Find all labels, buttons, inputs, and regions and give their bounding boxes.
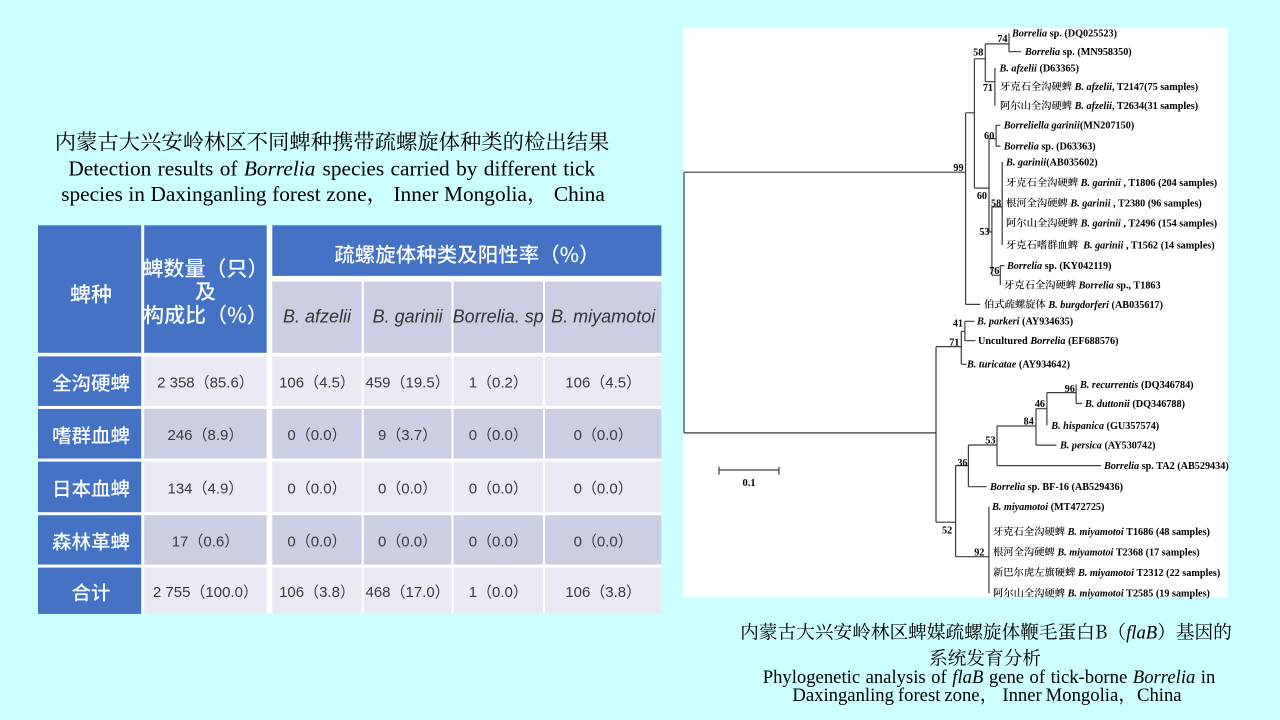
svg-text:0.0: 0.0 xyxy=(492,427,513,444)
svg-text:0: 0 xyxy=(287,533,295,550)
svg-text:0: 0 xyxy=(469,533,477,550)
svg-text:(AY530742): (AY530742) xyxy=(1102,441,1156,452)
svg-text:species carried by different t: species carried by different tick xyxy=(316,156,595,180)
svg-text:246: 246 xyxy=(168,427,193,444)
svg-text:0.0: 0.0 xyxy=(311,533,332,550)
svg-text:Borrelia. sp: Borrelia. sp xyxy=(453,307,544,327)
svg-text:71: 71 xyxy=(983,83,993,94)
svg-text:B. afzelii: B. afzelii xyxy=(283,307,352,327)
svg-text:60: 60 xyxy=(984,131,994,142)
svg-text:China: China xyxy=(1137,685,1182,706)
svg-text:T1686 (48 samples): T1686 (48 samples) xyxy=(1124,527,1210,538)
svg-text:Borrelia: Borrelia xyxy=(1076,280,1114,291)
svg-text:sp., T1863: sp., T1863 xyxy=(1114,280,1161,291)
svg-text:B. duttonii: B. duttonii xyxy=(1084,399,1130,410)
svg-text:, T1562 (14 samples): , T1562 (14 samples) xyxy=(1123,240,1214,251)
svg-text:0.0: 0.0 xyxy=(492,533,513,550)
svg-text:17.0: 17.0 xyxy=(406,584,435,601)
svg-text:0.0: 0.0 xyxy=(492,584,513,601)
svg-text:60: 60 xyxy=(977,191,987,202)
svg-text:468: 468 xyxy=(366,584,391,601)
svg-text:B. garinii: B. garinii xyxy=(1068,198,1111,209)
svg-text:92: 92 xyxy=(974,548,984,559)
svg-text:46: 46 xyxy=(1035,399,1045,410)
svg-text:B. turicatae: B. turicatae xyxy=(966,360,1017,371)
svg-text:B. miyamotoi: B. miyamotoi xyxy=(991,502,1048,513)
svg-text:0: 0 xyxy=(469,480,477,497)
svg-text:0.6: 0.6 xyxy=(203,533,224,550)
svg-text:53: 53 xyxy=(985,436,995,447)
svg-text:Borreliella garinii: Borreliella garinii xyxy=(1003,121,1080,132)
svg-text:0.0: 0.0 xyxy=(597,427,618,444)
svg-text:9: 9 xyxy=(378,427,386,444)
svg-text:52: 52 xyxy=(942,525,952,536)
svg-text:in: in xyxy=(1196,667,1216,688)
svg-text:Borrelia: Borrelia xyxy=(1003,142,1039,153)
svg-text:100.0: 100.0 xyxy=(205,584,243,601)
svg-text:B. miyamotoi: B. miyamotoi xyxy=(551,307,656,327)
svg-text:134: 134 xyxy=(168,480,193,497)
svg-text:1: 1 xyxy=(469,375,477,392)
svg-text:71: 71 xyxy=(949,337,959,348)
svg-text:China: China xyxy=(548,182,605,206)
svg-text:B. persica: B. persica xyxy=(1059,441,1102,452)
svg-text:B. burgdorferi: B. burgdorferi xyxy=(1046,300,1109,311)
svg-text:0.0: 0.0 xyxy=(597,533,618,550)
svg-text:19.5: 19.5 xyxy=(406,375,435,392)
svg-text:0: 0 xyxy=(378,533,386,550)
svg-text:T2585 (19 samples): T2585 (19 samples) xyxy=(1124,589,1210,600)
svg-text:2 358: 2 358 xyxy=(157,375,195,392)
svg-text:8.9: 8.9 xyxy=(208,427,229,444)
svg-text:76: 76 xyxy=(989,266,999,277)
svg-text:Uncultured: Uncultured xyxy=(978,336,1030,347)
svg-text:0.0: 0.0 xyxy=(597,480,618,497)
svg-text:B. afzelii: B. afzelii xyxy=(1072,101,1112,112)
svg-text:B. garinii: B. garinii xyxy=(1005,157,1046,168)
svg-text:B. garinii: B. garinii xyxy=(1078,240,1123,251)
svg-text:4.5: 4.5 xyxy=(605,375,626,392)
svg-text:(MT472725): (MT472725) xyxy=(1048,502,1104,513)
svg-text:Inner Mongolia: Inner Mongolia xyxy=(998,685,1119,706)
svg-text:(DQ346788): (DQ346788) xyxy=(1130,399,1185,410)
svg-text:Borrelia: Borrelia xyxy=(1029,336,1065,347)
svg-text:Detection results of: Detection results of xyxy=(68,156,243,180)
svg-text:Borrelia: Borrelia xyxy=(1006,261,1042,272)
svg-text:4.5: 4.5 xyxy=(319,375,340,392)
svg-text:2 755: 2 755 xyxy=(153,584,191,601)
svg-text:B. garinii: B. garinii xyxy=(1078,178,1121,189)
svg-text:0: 0 xyxy=(287,427,295,444)
svg-text:(MN207150): (MN207150) xyxy=(1080,121,1134,132)
svg-text:85.6: 85.6 xyxy=(210,375,239,392)
svg-text:T2368 (17 samples): T2368 (17 samples) xyxy=(1114,547,1200,558)
svg-text:, T2496 (154 samples): , T2496 (154 samples) xyxy=(1121,218,1217,229)
svg-text:459: 459 xyxy=(366,375,391,392)
svg-text:T2312 (22 samples): T2312 (22 samples) xyxy=(1134,568,1220,579)
svg-text:0: 0 xyxy=(574,480,582,497)
svg-text:0: 0 xyxy=(469,427,477,444)
svg-text:0.2: 0.2 xyxy=(492,375,513,392)
svg-text:106: 106 xyxy=(565,375,590,392)
svg-text:0.0: 0.0 xyxy=(311,480,332,497)
svg-text:0: 0 xyxy=(574,427,582,444)
svg-text:58: 58 xyxy=(991,198,1001,209)
svg-text:B. afzelii: B. afzelii xyxy=(1072,82,1112,93)
svg-text:Inner Mongolia: Inner Mongolia xyxy=(388,182,528,206)
svg-text:Borrelia: Borrelia xyxy=(1103,461,1139,472)
svg-text:(AY934642): (AY934642) xyxy=(1016,360,1070,371)
svg-text:0.0: 0.0 xyxy=(401,533,422,550)
svg-text:0: 0 xyxy=(287,480,295,497)
svg-text:36: 36 xyxy=(957,458,967,469)
svg-text:(AB035617): (AB035617) xyxy=(1109,300,1163,311)
svg-text:99: 99 xyxy=(953,163,963,174)
svg-text:3.8: 3.8 xyxy=(319,584,340,601)
svg-text:sp. (DQ025523): sp. (DQ025523) xyxy=(1047,29,1117,40)
svg-text:B. afzelii: B. afzelii xyxy=(999,63,1038,74)
svg-text:106: 106 xyxy=(279,584,304,601)
svg-text:, T2380 (96 samples): , T2380 (96 samples) xyxy=(1111,198,1202,209)
svg-text:0: 0 xyxy=(574,533,582,550)
svg-text:74: 74 xyxy=(997,34,1007,45)
svg-text:Borrelia: Borrelia xyxy=(244,156,315,180)
svg-text:41: 41 xyxy=(953,319,963,330)
svg-text:B. garinii: B. garinii xyxy=(1078,218,1121,229)
svg-text:0.0: 0.0 xyxy=(401,480,422,497)
svg-text:, T2634(31 samples): , T2634(31 samples) xyxy=(1112,101,1198,112)
svg-text:B. recurrentis: B. recurrentis xyxy=(1079,380,1138,391)
svg-text:B. garinii: B. garinii xyxy=(373,307,444,327)
svg-text:(GU357574): (GU357574) xyxy=(1104,421,1159,432)
svg-text:58: 58 xyxy=(973,48,983,59)
svg-text:106: 106 xyxy=(279,375,304,392)
svg-text:B. hispanica: B. hispanica xyxy=(1050,421,1104,432)
svg-text:sp. (KY042119): sp. (KY042119) xyxy=(1042,261,1111,272)
svg-text:3.7: 3.7 xyxy=(401,427,422,444)
svg-text:, T2147(75 samples): , T2147(75 samples) xyxy=(1112,82,1198,93)
svg-text:0.1: 0.1 xyxy=(742,478,755,489)
svg-text:(DQ346784): (DQ346784) xyxy=(1138,380,1193,391)
svg-text:(D63365): (D63365) xyxy=(1037,63,1079,74)
svg-text:sp. (D63363): sp. (D63363) xyxy=(1039,142,1096,153)
svg-text:4.9: 4.9 xyxy=(208,480,229,497)
svg-text:0.0: 0.0 xyxy=(492,480,513,497)
svg-text:0: 0 xyxy=(378,480,386,497)
svg-text:106: 106 xyxy=(565,584,590,601)
svg-text:17: 17 xyxy=(172,533,189,550)
svg-text:sp. BF-16 (AB529436): sp. BF-16 (AB529436) xyxy=(1025,482,1123,493)
svg-text:sp. (MN958350): sp. (MN958350) xyxy=(1060,47,1132,58)
svg-text:Borrelia: Borrelia xyxy=(1011,29,1047,40)
svg-text:0.0: 0.0 xyxy=(311,427,332,444)
svg-text:species in Daxinganling forest: species in Daxinganling forest zone xyxy=(61,182,366,206)
svg-text:Daxinganling forest zone: Daxinganling forest zone xyxy=(792,685,979,706)
svg-text:B. miyamotoi: B. miyamotoi xyxy=(1075,568,1134,579)
svg-text:B. miyamotoi: B. miyamotoi xyxy=(1065,589,1124,600)
svg-text:B. miyamotoi: B. miyamotoi xyxy=(1065,527,1124,538)
svg-text:84: 84 xyxy=(1024,417,1034,428)
svg-text:1: 1 xyxy=(469,584,477,601)
svg-text:53: 53 xyxy=(979,227,989,238)
svg-text:(EF688576): (EF688576) xyxy=(1066,336,1119,347)
svg-text:(AB035602): (AB035602) xyxy=(1046,157,1098,168)
svg-text:Borrelia: Borrelia xyxy=(989,482,1025,493)
svg-text:flaB: flaB xyxy=(1126,623,1157,644)
svg-text:3.8: 3.8 xyxy=(605,584,626,601)
svg-text:, T1806 (204 samples): , T1806 (204 samples) xyxy=(1121,178,1217,189)
svg-text:B. parkeri: B. parkeri xyxy=(976,317,1020,328)
svg-text:sp. TA2 (AB529434): sp. TA2 (AB529434) xyxy=(1139,461,1229,472)
svg-text:Borrelia: Borrelia xyxy=(1024,47,1060,58)
svg-text:(AY934635): (AY934635) xyxy=(1020,317,1074,328)
svg-text:B. miyamotoi: B. miyamotoi xyxy=(1055,547,1114,558)
svg-text:96: 96 xyxy=(1065,384,1075,395)
